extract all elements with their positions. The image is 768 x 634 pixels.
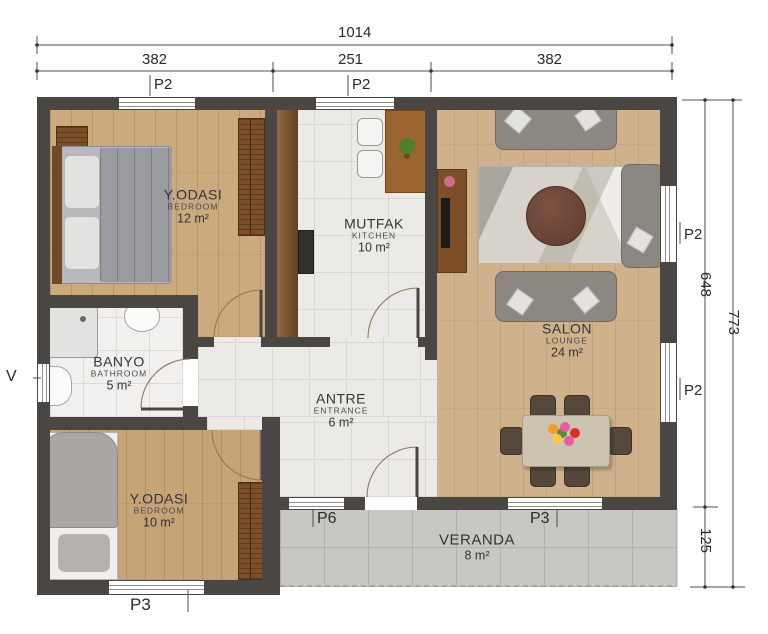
room-type: BATHROOM <box>91 370 147 379</box>
label-window-p2-salon-lower: P2 <box>684 382 702 399</box>
room-label-antre: ANTRE ENTRANCE 6 m² <box>314 392 369 431</box>
dim-dot <box>670 69 674 73</box>
room-type: BEDROOM <box>130 507 189 516</box>
floor-plan: 1014 382 251 382 648 773 125 P2 P2 P2 P2… <box>0 0 768 634</box>
dim-dot <box>35 43 39 47</box>
dim-veranda-height: 125 <box>697 528 714 553</box>
label-window-p3-bedroom2: P3 <box>130 595 151 615</box>
door-arc-bathroom <box>141 359 190 408</box>
dim-dot <box>35 69 39 73</box>
room-type: KITCHEN <box>344 232 404 241</box>
room-name: Y.ODASI <box>164 188 223 203</box>
room-name: SALON <box>542 322 592 337</box>
door-arc-entrance <box>367 447 417 497</box>
dim-seg-mid: 251 <box>338 51 363 68</box>
room-name: MUTFAK <box>344 217 404 232</box>
dim-seg-left: 382 <box>142 51 167 68</box>
room-type: BEDROOM <box>164 203 223 212</box>
room-type: LOUNGE <box>542 337 592 346</box>
room-name: Y.ODASI <box>130 492 189 507</box>
label-window-p3-veranda: P3 <box>530 510 550 528</box>
dim-dot <box>670 43 674 47</box>
dim-seg-right: 382 <box>537 51 562 68</box>
room-area: 10 m² <box>130 517 189 531</box>
door-arc-bedroom1 <box>214 290 261 337</box>
label-door-p6: P6 <box>317 510 337 528</box>
door-arc-kitchen <box>368 288 418 338</box>
room-area: 24 m² <box>542 347 592 361</box>
label-window-p2-salon-upper: P2 <box>684 226 702 243</box>
room-label-bedroom1: Y.ODASI BEDROOM 12 m² <box>164 188 223 227</box>
room-label-bathroom: BANYO BATHROOM 5 m² <box>91 355 147 394</box>
dim-dot <box>731 585 735 589</box>
room-area: 8 m² <box>439 550 515 564</box>
dim-dot <box>429 69 433 73</box>
room-label-veranda: VERANDA 8 m² <box>439 533 515 564</box>
annotation-layer <box>0 0 768 634</box>
room-label-bedroom2: Y.ODASI BEDROOM 10 m² <box>130 492 189 531</box>
dim-total-width: 1014 <box>338 24 371 41</box>
dim-total-height: 773 <box>725 310 742 335</box>
dim-dot <box>703 505 707 509</box>
dim-dot <box>703 585 707 589</box>
room-type: ENTRANCE <box>314 407 369 416</box>
dim-dot <box>703 98 707 102</box>
dim-inner-height: 648 <box>697 272 714 297</box>
room-label-kitchen: MUTFAK KITCHEN 10 m² <box>344 217 404 256</box>
label-window-p2-bedroom1: P2 <box>154 76 172 93</box>
label-window-v-bathroom: V <box>6 368 17 386</box>
dim-dot <box>731 98 735 102</box>
room-name: ANTRE <box>314 392 369 407</box>
room-area: 5 m² <box>91 380 147 394</box>
label-window-p2-kitchen: P2 <box>352 76 370 93</box>
room-name: VERANDA <box>439 533 515 549</box>
room-name: BANYO <box>91 355 147 370</box>
door-arc-bedroom2 <box>212 430 262 480</box>
room-area: 6 m² <box>314 417 369 431</box>
dim-dot <box>271 69 275 73</box>
room-area: 10 m² <box>344 242 404 256</box>
room-label-salon: SALON LOUNGE 24 m² <box>542 322 592 361</box>
room-area: 12 m² <box>164 213 223 227</box>
